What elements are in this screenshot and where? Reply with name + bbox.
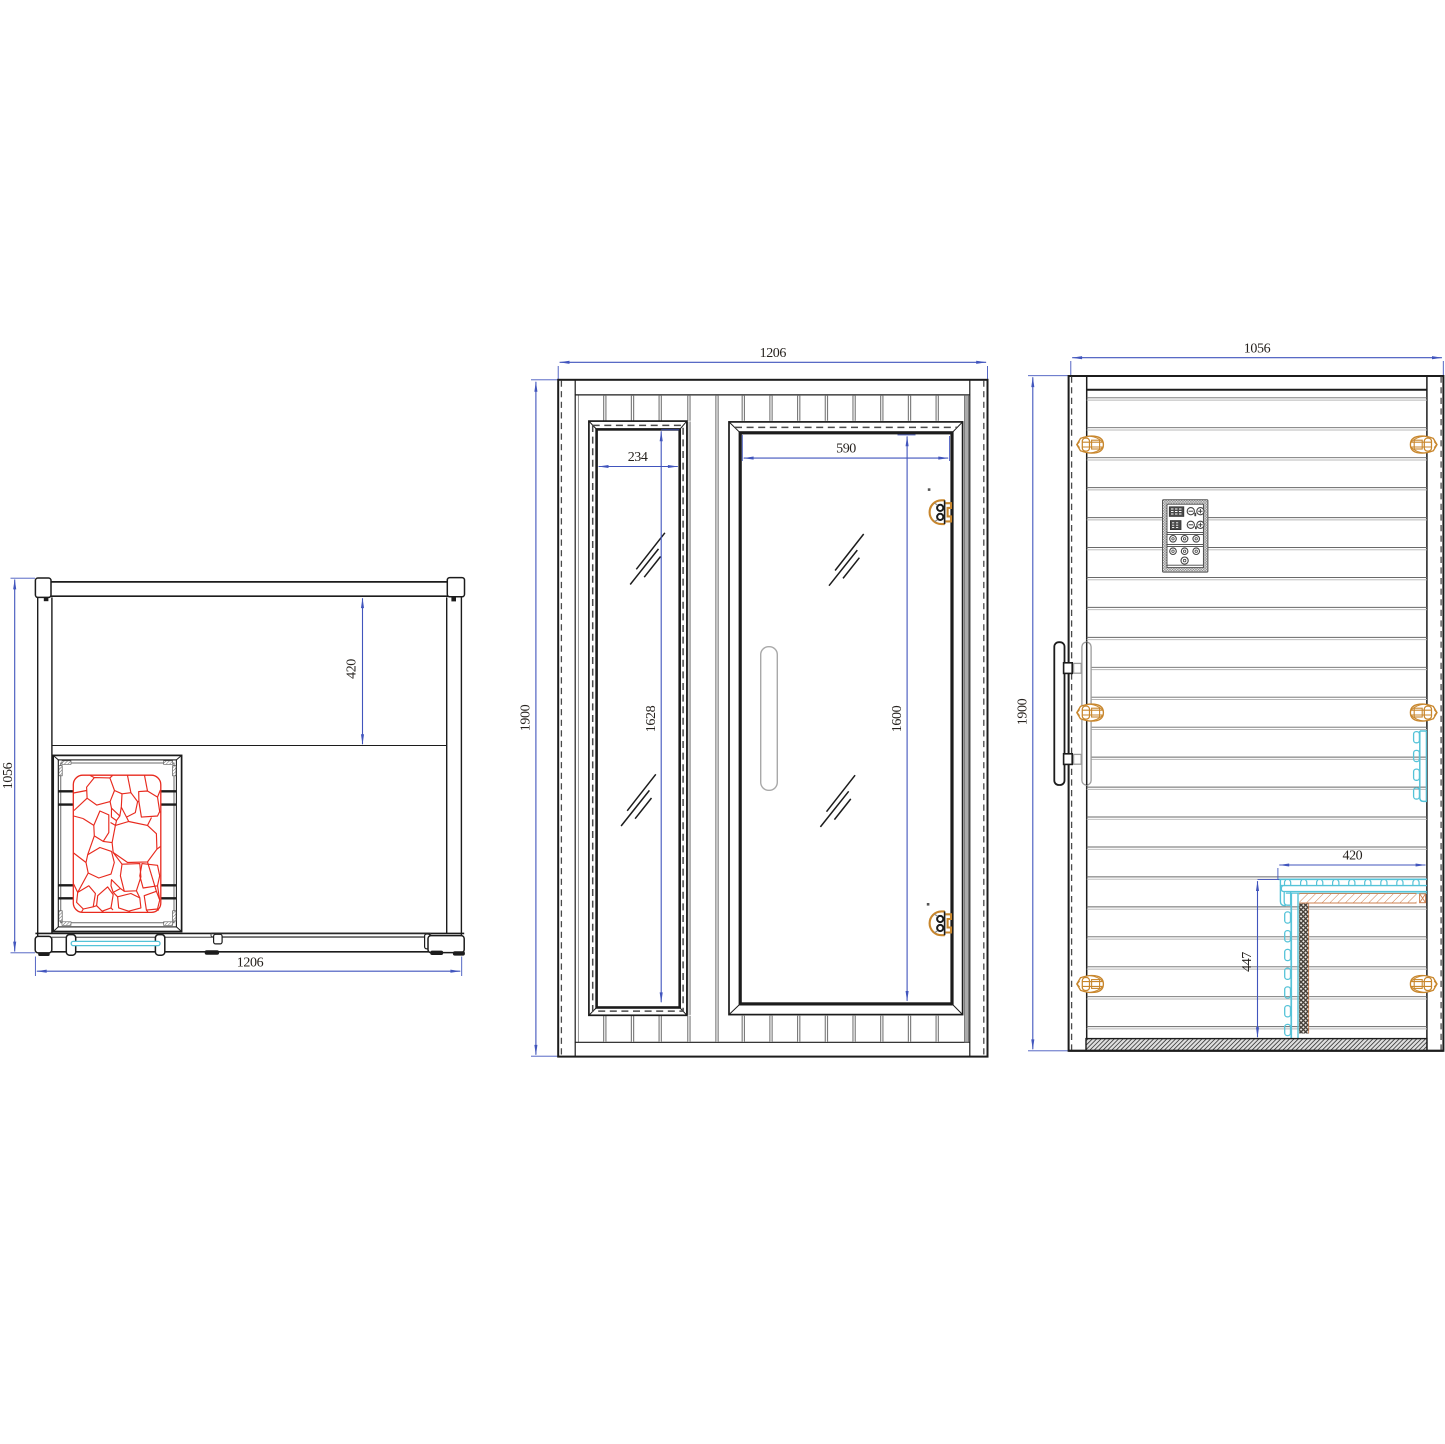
svg-text:420: 420 [1342,848,1362,863]
svg-text:234: 234 [628,450,648,465]
svg-text:1900: 1900 [519,704,534,731]
svg-text:1206: 1206 [237,955,264,970]
svg-text:447: 447 [1240,952,1255,972]
svg-text:1900: 1900 [1016,698,1031,725]
svg-text:1056: 1056 [1,762,16,789]
svg-text:1628: 1628 [644,705,659,732]
svg-text:590: 590 [836,442,856,457]
svg-text:1206: 1206 [760,346,787,361]
svg-text:420: 420 [345,659,360,679]
svg-text:1056: 1056 [1244,341,1271,356]
svg-text:1600: 1600 [890,705,905,732]
